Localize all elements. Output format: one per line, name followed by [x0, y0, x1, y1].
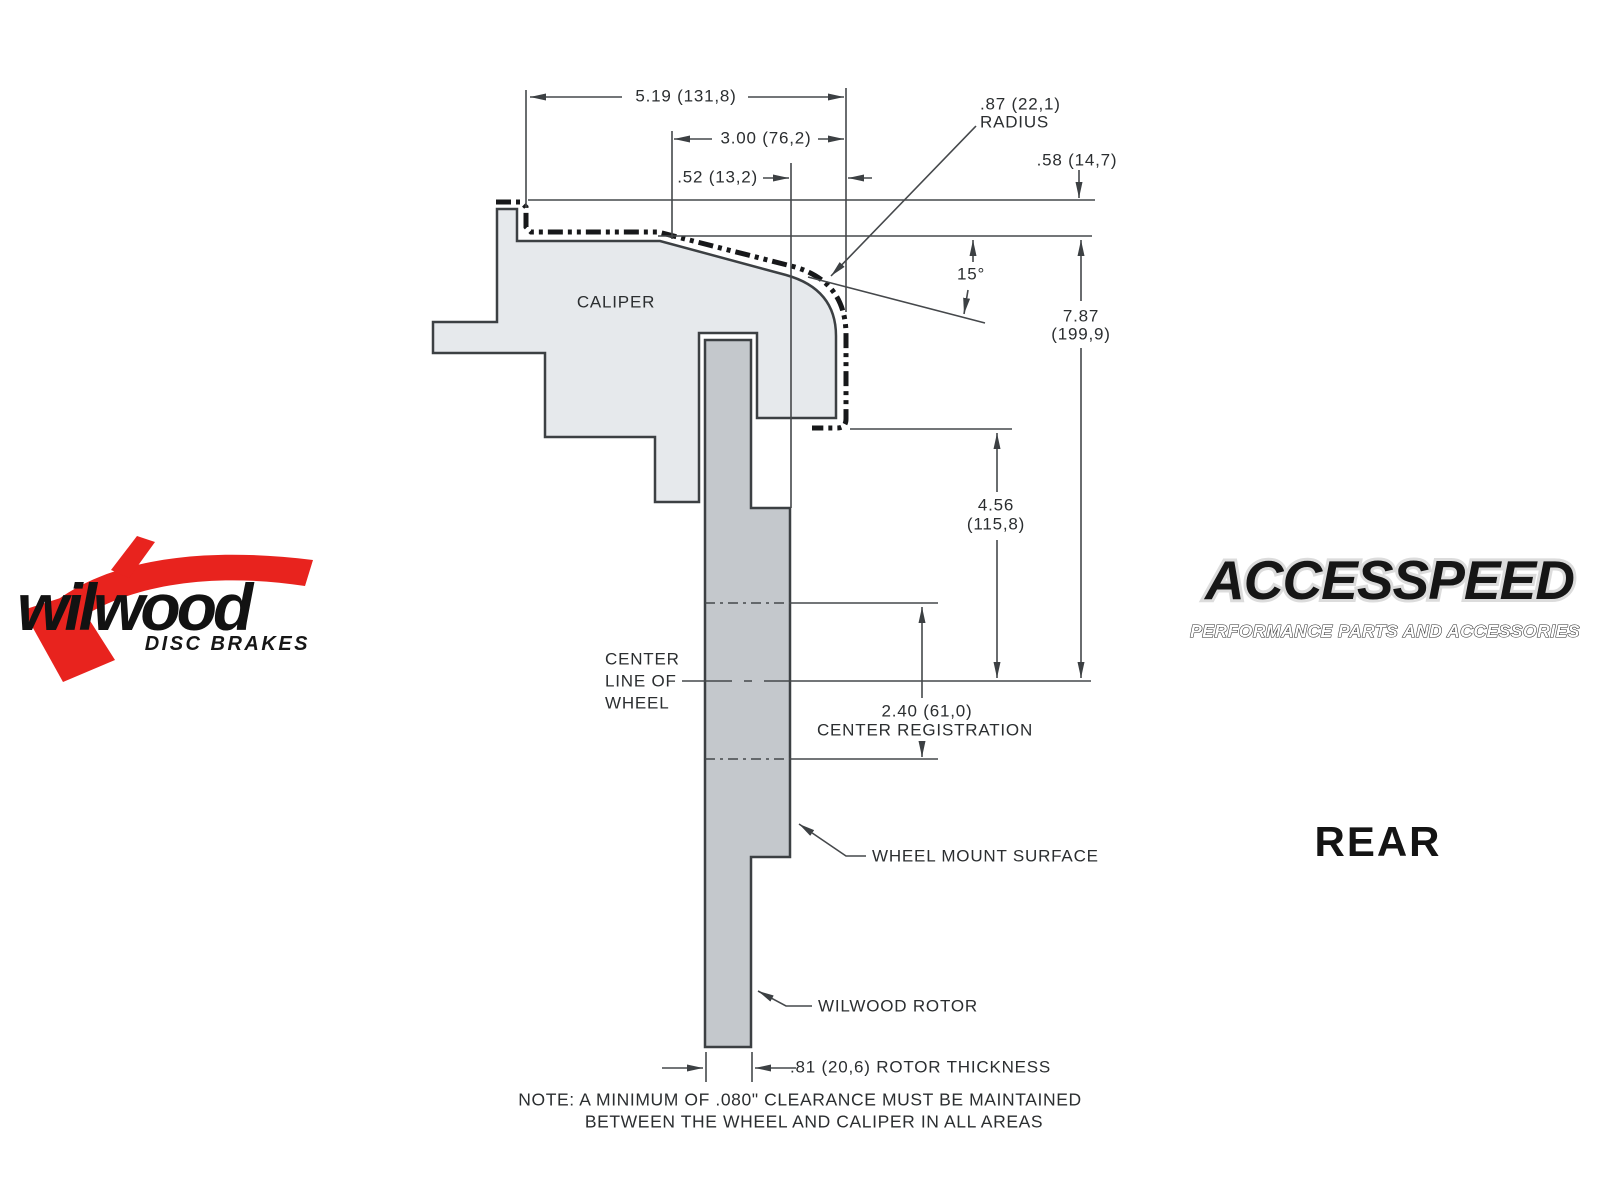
brake-dimension-diagram: 5.19 (131,8) 3.00 (76,2) .52 (13,2) .87 … [0, 0, 1600, 1200]
radius-leader-line [831, 126, 976, 276]
dim-angle-label: 15° [957, 264, 985, 283]
rotor-cross-section [705, 340, 790, 1047]
dim-2-40-label-line2: CENTER REGISTRATION [817, 720, 1033, 739]
wheel-mount-surface-label: WHEEL MOUNT SURFACE [872, 846, 1099, 865]
centerline-label-line1: CENTER [605, 649, 680, 668]
dim-7-87-label-line2: (199,9) [1051, 324, 1110, 343]
wheel-mount-leader-line [799, 824, 866, 856]
dim-0-58-label: .58 (14,7) [1037, 150, 1118, 169]
view-label-rear: REAR [1314, 818, 1441, 865]
caliper-cross-section [433, 209, 836, 502]
rotor-leader-line [758, 991, 812, 1006]
dim-3-00-label: 3.00 (76,2) [720, 128, 811, 147]
technical-drawing-canvas: 5.19 (131,8) 3.00 (76,2) .52 (13,2) .87 … [0, 0, 1600, 1200]
wilwood-logo-tagline: DISC BRAKES [145, 633, 310, 655]
dim-4-56-label-line2: (115,8) [967, 514, 1025, 533]
dim-7-87-label-line1: 7.87 [1063, 306, 1099, 325]
clearance-note-line1: NOTE: A MINIMUM OF .080" CLEARANCE MUST … [518, 1090, 1081, 1110]
dim-radius-label-line1: .87 (22,1) [980, 94, 1061, 113]
centerline-label-line3: WHEEL [605, 693, 669, 712]
dim-4-56-label-line1: 4.56 [978, 495, 1014, 514]
clearance-note-line2: BETWEEN THE WHEEL AND CALIPER IN ALL ARE… [585, 1112, 1043, 1132]
wilwood-rotor-label: WILWOOD ROTOR [818, 996, 978, 1015]
wilwood-logo: wilwood DISC BRAKES [17, 536, 313, 682]
dim-2-40-label-line1: 2.40 (61,0) [881, 701, 972, 720]
centerline-label-line2: LINE OF [605, 671, 677, 690]
caliper-label: CALIPER [577, 292, 655, 311]
accesspeed-logo-wordmark: ACCESSPEED [1203, 549, 1574, 611]
angle-arrow-down [964, 290, 968, 314]
dim-radius-label-line2: RADIUS [980, 112, 1049, 131]
dim-0-52-label: .52 (13,2) [677, 167, 758, 186]
accesspeed-logo: ACCESSPEED PERFORMANCE PARTS AND ACCESSO… [1190, 549, 1580, 641]
dim-5-19-label: 5.19 (131,8) [635, 86, 736, 105]
accesspeed-logo-tagline: PERFORMANCE PARTS AND ACCESSORIES [1190, 621, 1580, 641]
dim-rotor-thickness-label: .81 (20,6) ROTOR THICKNESS [790, 1057, 1051, 1076]
